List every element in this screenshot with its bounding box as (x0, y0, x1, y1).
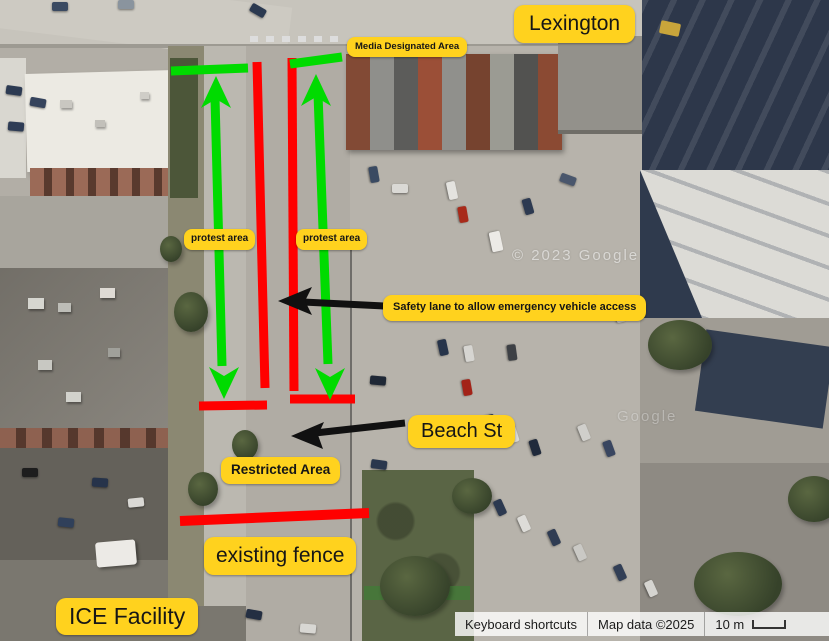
barrier-bar-bottom-left (199, 405, 267, 406)
label-media-designated-area: Media Designated Area (347, 37, 467, 57)
label-restricted-area: Restricted Area (221, 457, 340, 484)
barrier-line-right (292, 58, 294, 391)
label-lexington: Lexington (514, 5, 635, 43)
label-existing-fence: existing fence (204, 537, 356, 575)
label-ice-facility: ICE Facility (56, 598, 198, 635)
label-protest-area-left: protest area (184, 229, 255, 250)
keyboard-shortcuts-button[interactable]: Keyboard shortcuts (455, 612, 587, 636)
label-safety-lane: Safety lane to allow emergency vehicle a… (383, 295, 646, 321)
map-data-attribution: Map data ©2025 (587, 612, 704, 636)
protest-bar-top-left (171, 68, 248, 71)
scale-bar (752, 620, 786, 629)
scale-text: 10 m (715, 617, 744, 632)
label-beach-st: Beach St (408, 415, 515, 448)
safety-lane-arrow-shaft (303, 302, 384, 306)
protest-bar-top-right (290, 57, 342, 64)
satellite-map[interactable]: © 2023 Google Google Lexington Media Des… (0, 0, 829, 641)
arrowhead-down-left (209, 367, 239, 399)
label-protest-area-right: protest area (296, 229, 367, 250)
map-attribution-bar: Keyboard shortcuts Map data ©2025 10 m (455, 612, 829, 636)
beach-st-arrow-shaft (315, 423, 405, 433)
scale-control: 10 m (704, 612, 796, 636)
barrier-line-left (257, 62, 265, 388)
existing-fence-line (180, 513, 369, 521)
